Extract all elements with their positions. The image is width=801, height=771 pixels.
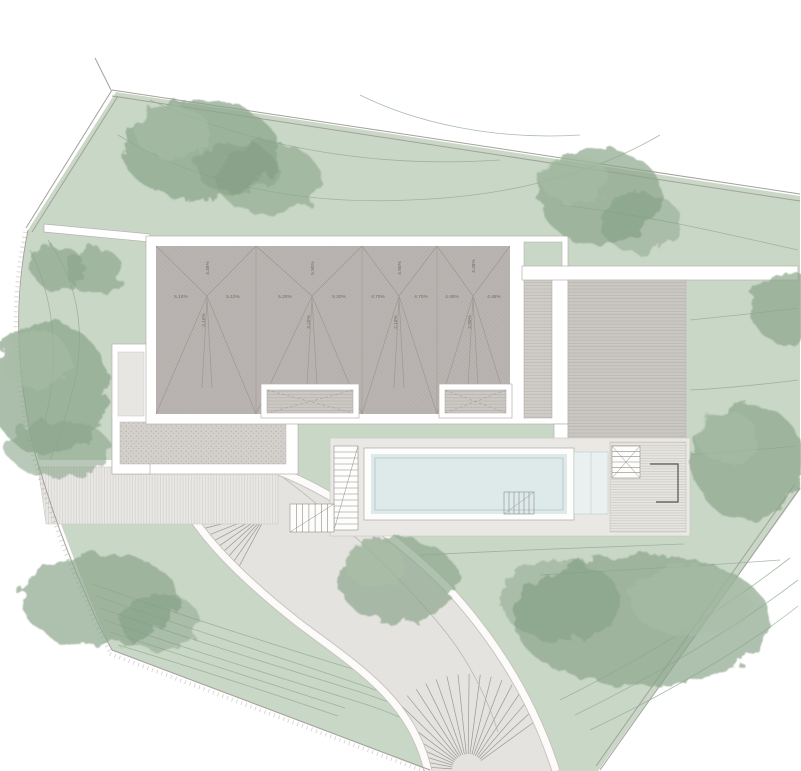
tree-foliage-blob	[120, 594, 200, 650]
tree-foliage-blob	[600, 192, 680, 252]
pool-water	[371, 454, 567, 514]
pool-terrace	[290, 438, 690, 536]
tree-foliage-blob	[541, 156, 609, 204]
site-plan-canvas: 5.10% 5.10% 4.48% 2.10% 5.20% 5.20% 5.90…	[0, 0, 801, 771]
tree-foliage-blob	[2, 330, 70, 390]
main-building: 5.10% 5.10% 4.48% 2.10% 5.20% 5.20% 5.90…	[146, 236, 568, 448]
green-courtyard	[524, 242, 562, 268]
tree-foliage-blob	[134, 106, 210, 158]
roof-slope-label: 5.20%	[278, 294, 292, 299]
tree-foliage-blob	[6, 420, 110, 476]
terrace-texture	[568, 280, 686, 446]
retaining-wall	[522, 266, 798, 280]
roof-slope-label: 4.48%	[205, 261, 210, 275]
roof-slope-label: 4.48%	[445, 294, 459, 299]
courtyard-skylight-2	[439, 384, 512, 418]
stair-west-of-pool	[334, 446, 358, 530]
roof-slope-label: 4.70%	[371, 294, 385, 299]
roof-slope-label: 5.10%	[226, 294, 240, 299]
east-terrace	[568, 280, 686, 446]
roof-slope-label: 5.90%	[310, 261, 315, 275]
roof-slope-label: 2.90%	[467, 315, 472, 329]
stair-to-terrace	[612, 446, 640, 478]
tree-foliage-blob	[500, 560, 620, 640]
roof-slope-label: 3.20%	[306, 315, 311, 329]
tree-canopy	[0, 322, 110, 476]
tree-foliage-blob	[345, 543, 405, 587]
corridor-texture	[524, 280, 552, 418]
roof-slope-label: 4.48%	[471, 259, 476, 273]
roof-slope-label: 2.10%	[393, 315, 398, 329]
roof-slope-label: 2.10%	[201, 313, 206, 327]
roof-slope-label: 5.20%	[332, 294, 346, 299]
walkway-texture	[38, 467, 278, 524]
site-plan-drawing: 5.10% 5.10% 4.48% 2.10% 5.20% 5.20% 5.90…	[0, 0, 801, 771]
roof-slope-label: 5.10%	[174, 294, 188, 299]
tree-canopy	[338, 538, 458, 622]
roof-slope-label: 4.70%	[414, 294, 428, 299]
gravel-texture	[120, 422, 286, 464]
tree-foliage-blob	[196, 142, 276, 194]
stair-southwest-corner	[290, 504, 334, 532]
roof-slope-label: 4.48%	[487, 294, 501, 299]
tree-foliage-blob	[68, 249, 124, 295]
swimming-pool	[364, 448, 574, 520]
roof-slope-label: 4.90%	[397, 261, 402, 275]
side-path	[118, 352, 144, 416]
tree-foliage-blob	[698, 412, 758, 464]
tree-canopy	[692, 404, 801, 520]
tree-foliage-blob	[630, 564, 750, 636]
courtyard-skylight-1	[261, 384, 359, 418]
wood-deck	[610, 442, 686, 532]
